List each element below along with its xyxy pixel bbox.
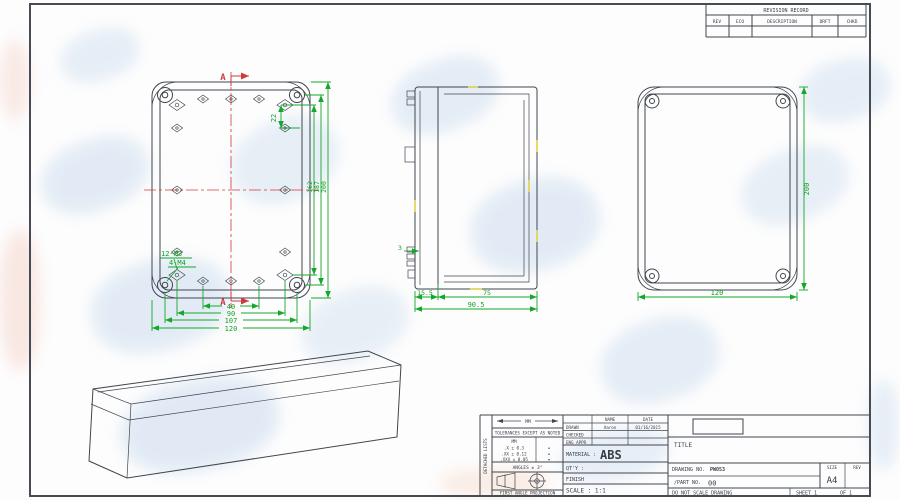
drawing-no-value: PW053 bbox=[710, 467, 725, 473]
size-label: SIZE bbox=[827, 465, 838, 470]
dim-120: 120 bbox=[225, 325, 238, 333]
signature-column: NAME DATE DRAWN Aaron 01/16/2015 CHECKED… bbox=[563, 415, 668, 495]
drawn-name: Aaron bbox=[604, 425, 617, 430]
logo-box bbox=[693, 419, 743, 434]
revision-col-chkd: CHKD bbox=[847, 19, 858, 25]
first-angle-projection-symbol bbox=[497, 472, 546, 490]
side-dimensions: 3 15.5 75 90.5 bbox=[398, 244, 537, 312]
side-view: 3 15.5 75 90.5 bbox=[398, 87, 537, 312]
title-label: TITLE bbox=[674, 442, 692, 449]
isometric-view bbox=[89, 351, 401, 478]
drawing-no-label: DRAWING NO. bbox=[672, 467, 705, 473]
drawing-canvas: REVISION RECORD REV ECO DESCRIPTION DRFT… bbox=[0, 0, 900, 500]
dim-22: 22 bbox=[270, 114, 278, 122]
material-value: ABS bbox=[600, 448, 622, 462]
centerlines bbox=[144, 72, 318, 308]
dim-90-5: 90.5 bbox=[468, 301, 485, 309]
label-4-m4: 4-M4 bbox=[169, 259, 186, 267]
finish-label: FINISH bbox=[566, 477, 584, 483]
back-view: 200 120 bbox=[638, 87, 811, 301]
tolerance-dot-3: • bbox=[547, 458, 550, 464]
rev-label: REV bbox=[853, 465, 861, 470]
name-header: NAME bbox=[605, 417, 616, 422]
sheet-frame bbox=[30, 4, 870, 496]
dim-75: 75 bbox=[483, 289, 491, 297]
sheet-of-label: OF 1 bbox=[840, 491, 852, 497]
revision-record-table: REVISION RECORD REV ECO DESCRIPTION DRFT… bbox=[706, 4, 866, 37]
lid-tabs bbox=[405, 91, 415, 278]
angles-tolerance: ANGLES ± 3° bbox=[513, 465, 543, 471]
revision-table-title: REVISION RECORD bbox=[763, 8, 808, 14]
title-section: TITLE DRAWING NO. PW053 /PART NO. 00 SIZ… bbox=[668, 419, 869, 497]
drawing-sheet: REVISION RECORD REV ECO DESCRIPTION DRFT… bbox=[0, 0, 900, 500]
sheet-label: SHEET 1 bbox=[796, 491, 817, 497]
tolerance-row-2: .XX ± 0.12 bbox=[501, 452, 527, 457]
tolerance-note: TOLERANCES EXCEPT AS NOTED bbox=[495, 431, 561, 436]
revision-col-drft: DRFT bbox=[820, 19, 831, 25]
tolerance-row-1: .X ± 0.3 bbox=[504, 446, 525, 451]
do-not-scale-note: DO NOT SCALE DRAWING bbox=[672, 491, 732, 497]
dim-3: 3 bbox=[398, 244, 402, 252]
part-no-value: 00 bbox=[708, 480, 716, 488]
lid-corner-screws bbox=[645, 94, 790, 283]
section-marker-a: A A bbox=[220, 73, 249, 308]
projection-label: FIRST ANGLE PROJECTION bbox=[500, 491, 556, 496]
drawn-date: 01/16/2015 bbox=[635, 425, 661, 430]
label-12-m3: 12-M3 bbox=[161, 250, 182, 258]
dim-back-200: 200 bbox=[803, 183, 811, 196]
tolerance-block: MM TOLERANCES EXCEPT AS NOTED MM .X ± 0.… bbox=[492, 419, 563, 496]
highlight-ticks bbox=[415, 87, 537, 289]
revision-col-description: DESCRIPTION bbox=[767, 19, 797, 25]
dim-back-120: 120 bbox=[711, 289, 724, 297]
dim-200: 200 bbox=[320, 181, 328, 193]
front-view: A A 22 162 1 bbox=[144, 72, 331, 333]
section-label-top: A bbox=[220, 73, 226, 83]
eng-appr-label: ENG APPR bbox=[566, 440, 587, 445]
date-header: DATE bbox=[643, 417, 654, 422]
tolerance-row-3: .XXX ± 0.05 bbox=[500, 457, 528, 462]
part-no-label: /PART NO. bbox=[674, 480, 701, 486]
title-block: DETACHED LISTS MM TOLERANCES EXCEPT AS N… bbox=[480, 415, 869, 497]
size-value: A4 bbox=[827, 476, 838, 486]
title-block-side-label: DETACHED LISTS bbox=[483, 438, 488, 474]
qty-label: QT'Y : bbox=[566, 466, 584, 472]
tolerance-header-mm: MM bbox=[511, 439, 517, 444]
units-symbol: MM bbox=[525, 419, 531, 425]
revision-col-rev: REV bbox=[713, 19, 721, 25]
revision-col-eco: ECO bbox=[736, 19, 744, 25]
material-label: MATERIAL : bbox=[566, 452, 596, 458]
checked-label: CHECKED bbox=[566, 433, 584, 438]
section-label-bottom: A bbox=[220, 298, 226, 308]
drawn-label: DRAWN bbox=[566, 425, 579, 430]
dim-15-5: 15.5 bbox=[417, 289, 433, 297]
scale-label: SCALE : 1:1 bbox=[566, 488, 606, 495]
dim-107: 107 bbox=[225, 317, 238, 325]
